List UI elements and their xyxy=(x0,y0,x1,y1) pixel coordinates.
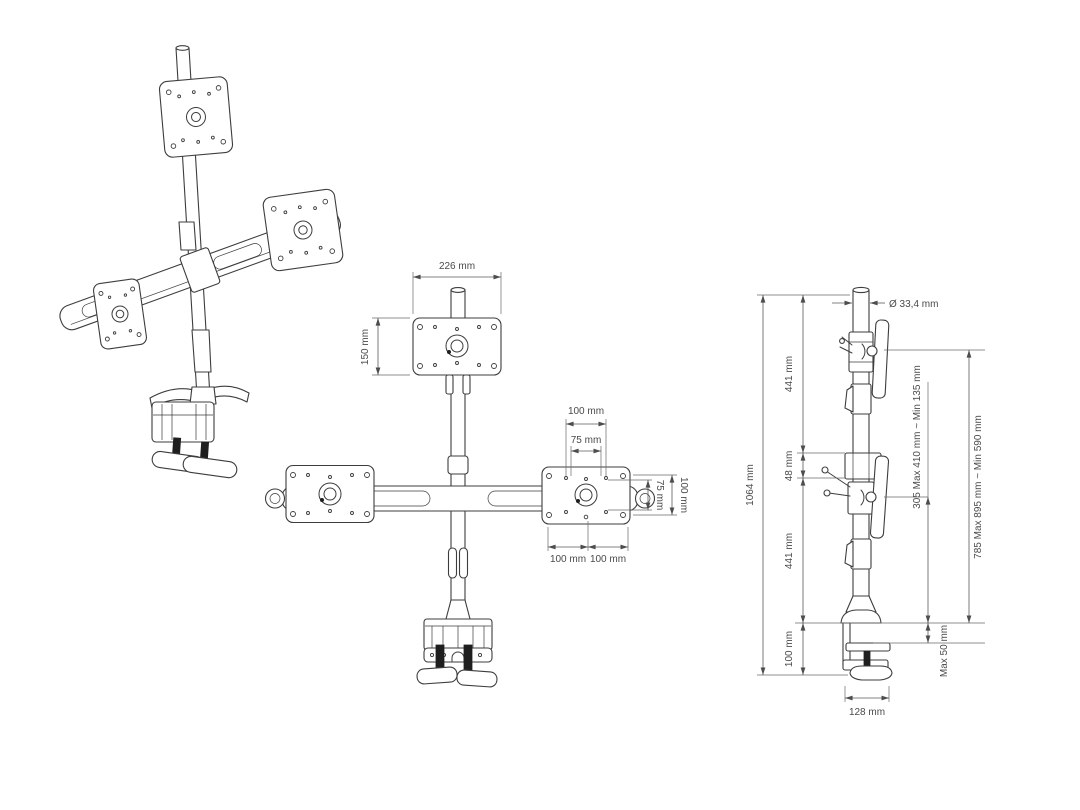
dim-pole-sections: 441 mm 48 mm 441 mm 100 mm xyxy=(784,295,803,675)
vesa-plate-left-front xyxy=(286,466,374,523)
dim-label-arm-left-100: 100 mm xyxy=(550,554,586,565)
lower-cable-clip-side xyxy=(845,539,871,569)
vesa-plate-right-perspective xyxy=(262,188,344,271)
dim-label-pole-diameter: Ø 33,4 mm xyxy=(889,299,938,310)
dim-label-total-height: 1064 mm xyxy=(745,464,756,506)
desk-clamp-front xyxy=(417,600,498,687)
upper-cable-clip-side xyxy=(845,384,871,414)
technical-drawing-page: 226 mm 150 mm 100 mm 75 mm xyxy=(0,0,1080,810)
dim-label-vesa-width-100: 100 mm xyxy=(568,406,604,417)
drawing-svg: 226 mm 150 mm 100 mm 75 mm xyxy=(0,0,1080,810)
dim-label-vesa-width-75: 75 mm xyxy=(571,435,602,446)
dim-label-base-section: 100 mm xyxy=(784,631,795,667)
dim-label-arm-right-100: 100 mm xyxy=(590,554,626,565)
dim-clamp-depth: 128 mm xyxy=(845,686,889,718)
dim-label-vesa-height-75: 75 mm xyxy=(654,480,665,511)
dim-label-plate-width: 226 mm xyxy=(439,261,475,272)
dim-mid-monitor-height: 305 Max 410 mm ~ Min 135 mm xyxy=(912,365,928,623)
front-view-dimensions: 226 mm 150 mm 100 mm 75 mm xyxy=(360,261,689,565)
perspective-view xyxy=(54,46,345,479)
dim-label-lower-section: 441 mm xyxy=(784,533,795,569)
dim-label-plate-height: 150 mm xyxy=(360,329,371,365)
dim-label-vesa-height-100: 100 mm xyxy=(678,477,689,513)
dim-pole-diameter: Ø 33,4 mm xyxy=(832,299,938,310)
dim-label-top-monitor-height: 785 Max 895 mm ~ Min 590 mm xyxy=(973,415,984,559)
dim-total-height: 1064 mm xyxy=(745,295,763,675)
vesa-plate-right-front xyxy=(542,467,630,524)
vesa-plate-top-front xyxy=(413,318,501,375)
side-view: 1064 mm 441 mm 48 mm 441 mm 100 mm Ø 33,… xyxy=(745,287,985,718)
dim-label-desk-thickness: Max 50 mm xyxy=(939,625,950,677)
dim-top-monitor-height: 785 Max 895 mm ~ Min 590 mm xyxy=(969,350,984,623)
dim-label-crossbar-joint: 48 mm xyxy=(784,451,795,482)
dim-label-mid-monitor-height: 305 Max 410 mm ~ Min 135 mm xyxy=(912,365,923,509)
dim-label-upper-section: 441 mm xyxy=(784,356,795,392)
vesa-plate-left-perspective xyxy=(93,278,148,350)
desk-clamp-side xyxy=(841,596,892,680)
desk-clamp-perspective xyxy=(150,386,249,479)
front-view: 226 mm 150 mm 100 mm 75 mm xyxy=(266,261,690,687)
dim-desk-thickness: Max 50 mm xyxy=(928,623,950,677)
dim-label-clamp-depth: 128 mm xyxy=(849,707,885,718)
dim-arm-offsets: 100 mm 100 mm xyxy=(548,521,628,565)
dim-plate-height: 150 mm xyxy=(360,318,410,375)
vesa-plate-top-perspective xyxy=(159,76,233,158)
